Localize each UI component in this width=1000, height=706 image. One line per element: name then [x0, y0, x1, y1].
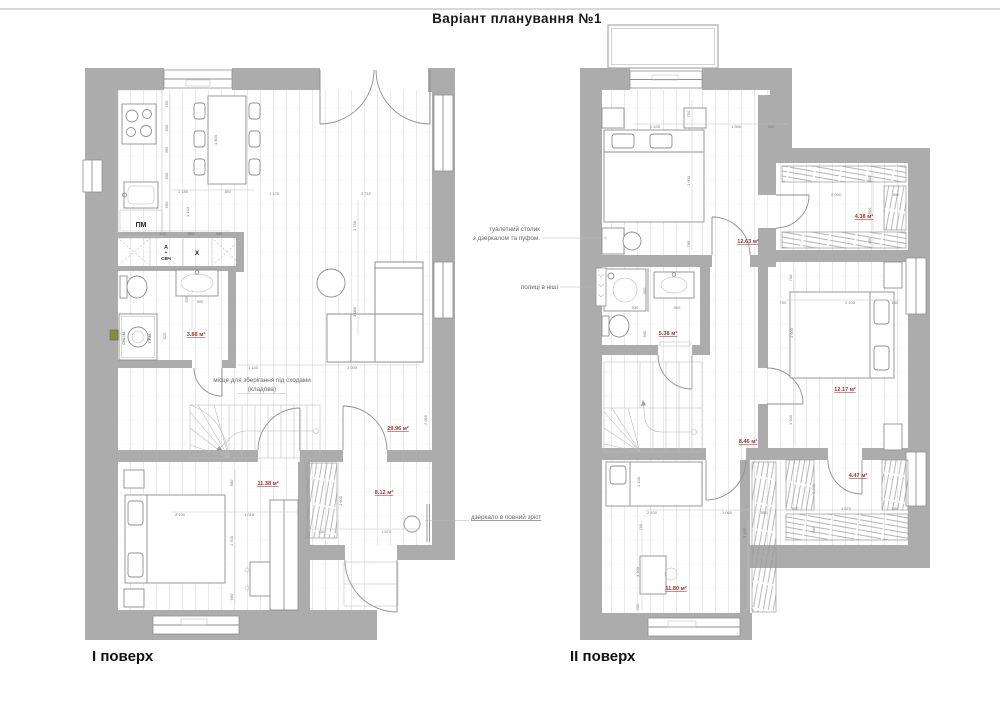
area-label: 11.38 м² — [257, 480, 278, 487]
dimension-label: 2 100 — [175, 512, 186, 517]
corridor-wardrobe — [752, 462, 776, 612]
dimension-label: 500 — [892, 506, 899, 511]
dimension-label: 1 240 — [811, 483, 816, 494]
window-icon — [153, 616, 239, 634]
toilet-icon — [120, 276, 147, 298]
dimension-label: 1 800 — [213, 134, 218, 145]
window-icon — [434, 262, 453, 318]
dimension-label: 900 — [811, 526, 816, 533]
dimension-label: 1 700 — [229, 535, 234, 546]
dimension-label: 1 305 — [731, 124, 742, 129]
dimension-label: 1 125 — [269, 191, 280, 196]
window-icon — [434, 95, 453, 171]
dimension-label: 200 — [635, 603, 640, 610]
window-icon — [906, 452, 926, 506]
dimension-label: 3 000 — [347, 365, 358, 370]
area-label: 8.46 м² — [739, 438, 758, 445]
shelves-note: полиці в ніші — [521, 283, 558, 291]
dimension-label: 1 144 — [185, 206, 190, 217]
dressing-table-note-line2: з дзеркалом та пуфом. — [473, 235, 540, 242]
dimension-label: 785 — [686, 240, 691, 247]
bath-sink-icon — [654, 272, 694, 298]
dimension-label: 2 090 — [831, 192, 842, 197]
window-icon — [906, 258, 926, 314]
dimension-label: 600 — [164, 201, 169, 208]
dimension-label: 2 100 — [650, 124, 661, 129]
pouf — [404, 516, 420, 532]
dimension-label: 600 — [164, 124, 169, 131]
dimension-label: 680 — [229, 479, 234, 486]
stove-icon — [122, 104, 156, 144]
area-label: 4.47 м² — [849, 472, 868, 479]
dimension-label: 2 100 — [845, 300, 856, 305]
dimension-label: 500 — [792, 506, 799, 511]
shower-icon — [604, 269, 646, 311]
area-label: 29.96 м² — [387, 425, 409, 432]
dimension-label: 750 — [686, 110, 691, 117]
floor-plan-page: Варіант планування №1 І поверх ІІ поверх — [0, 0, 1000, 706]
dimension-label: 800 — [225, 189, 232, 194]
hall-wardrobe — [307, 463, 337, 538]
dimension-label: 2 055 — [423, 414, 428, 425]
dimension-label: 740 — [788, 274, 793, 281]
dimension-label: 1 010 — [244, 512, 255, 517]
nightstand — [124, 589, 144, 607]
dimension-label: 1 143 — [248, 365, 259, 370]
floor1-plan: 7506003656006001 8001 1808001 1446006003… — [83, 68, 455, 640]
dimension-label: 1 605 — [338, 495, 343, 506]
dimension-label: 750 — [164, 100, 169, 107]
nightstand — [884, 262, 902, 288]
dimension-label: 700 — [780, 300, 787, 305]
dimension-label: 900 — [674, 305, 681, 310]
dishwasher-label: ПМ — [136, 222, 147, 229]
dimension-label: 600 — [319, 529, 326, 534]
dimension-label: 1 060 — [722, 510, 733, 515]
toilet-icon — [602, 315, 629, 337]
single-bed — [606, 462, 702, 506]
area-label: 4.38 м² — [855, 213, 874, 220]
dimension-label: 1 570 — [841, 506, 852, 511]
dimension-label: 935 — [184, 295, 189, 302]
dimension-label: 2 100 — [647, 510, 658, 515]
nightstand — [124, 470, 144, 488]
dimension-label: 3 195 — [742, 527, 747, 538]
dimension-label: 600 — [164, 172, 169, 179]
window-icon — [648, 618, 740, 636]
dimension-label: 600 — [160, 231, 167, 236]
nightstand — [884, 424, 902, 450]
oven-label-2: + — [165, 250, 168, 255]
dressing-table — [602, 228, 624, 254]
area-label: 5.38 м² — [659, 330, 678, 337]
dimension-label: 1 900 — [789, 327, 794, 338]
dimension-label: 795 — [638, 523, 643, 530]
area-label: 3.88 м² — [187, 331, 206, 338]
window-icon — [164, 70, 232, 88]
storage-note-line1: місце для зберігання під сходами — [213, 376, 311, 384]
pouf — [623, 232, 641, 250]
dimension-label: 2 710 — [361, 191, 372, 196]
dimension-label: 950 — [642, 287, 647, 294]
area-label: 12.17 м² — [834, 386, 856, 393]
double-bed — [125, 495, 225, 583]
dimension-label: 1 730 — [352, 220, 357, 231]
coffee-table — [317, 269, 345, 297]
area-label: 12.63 м² — [737, 238, 759, 245]
double-bed — [790, 292, 894, 378]
dimension-label: 1 180 — [178, 189, 189, 194]
mirror-note: дзеркало в повний зріст — [471, 513, 541, 521]
window-icon — [83, 160, 102, 192]
dimension-label: 400 — [867, 237, 872, 244]
area-label: 8.12 м² — [375, 489, 394, 496]
dimension-label: 550 — [761, 510, 768, 515]
fridge-label: Х — [195, 250, 200, 257]
dimension-label: 620 — [162, 332, 167, 339]
dimension-label: 1 900 — [686, 175, 691, 186]
dimension-label: 900 — [642, 330, 647, 337]
dryer-label: СУШ.М. — [122, 331, 126, 345]
electric-panel — [110, 330, 118, 340]
dimension-label: 400 — [867, 175, 872, 182]
legend-box — [608, 25, 718, 68]
kitchen-sink-icon — [123, 182, 159, 208]
dining-table — [194, 96, 260, 184]
floor-plans-drawing: 7506003656006001 8001 1808001 1446006003… — [0, 0, 1000, 706]
storage-note-line2: (кладова) — [248, 386, 276, 393]
dressing-table-note-line1: туалетний столик — [489, 225, 540, 233]
dimension-label: 930 — [632, 305, 639, 310]
bath-sink-icon — [176, 270, 218, 296]
floor2-plan: 2 1007501 3053001 9007852 09050040080040… — [580, 68, 930, 640]
dimension-label: 500 — [893, 192, 900, 197]
dimension-label: 1 870 — [381, 529, 392, 534]
dimension-label: 1 100 — [636, 476, 641, 487]
nightstand — [602, 108, 624, 128]
dimension-label: 365 — [164, 146, 169, 153]
dimension-label: 1 200 — [635, 566, 640, 577]
niche-shelves — [596, 268, 606, 306]
dimension-label: 1 500 — [788, 414, 793, 425]
dimension-label: 3 080 — [352, 306, 357, 317]
wardrobe-cabinet — [270, 500, 298, 610]
dimension-label: 900 — [197, 299, 204, 304]
dimension-label: 345 — [216, 231, 223, 236]
dimension-label: 140 — [892, 300, 899, 305]
area-label: 11.80 м² — [665, 585, 686, 592]
dimension-label: 300 — [768, 124, 775, 129]
dimension-label: 680 — [229, 593, 234, 600]
washer-label: ПР.М. — [148, 333, 152, 343]
window-icon — [630, 71, 702, 88]
dimension-label: 600 — [188, 231, 195, 236]
oven-label-3: СВЧ — [161, 256, 171, 261]
